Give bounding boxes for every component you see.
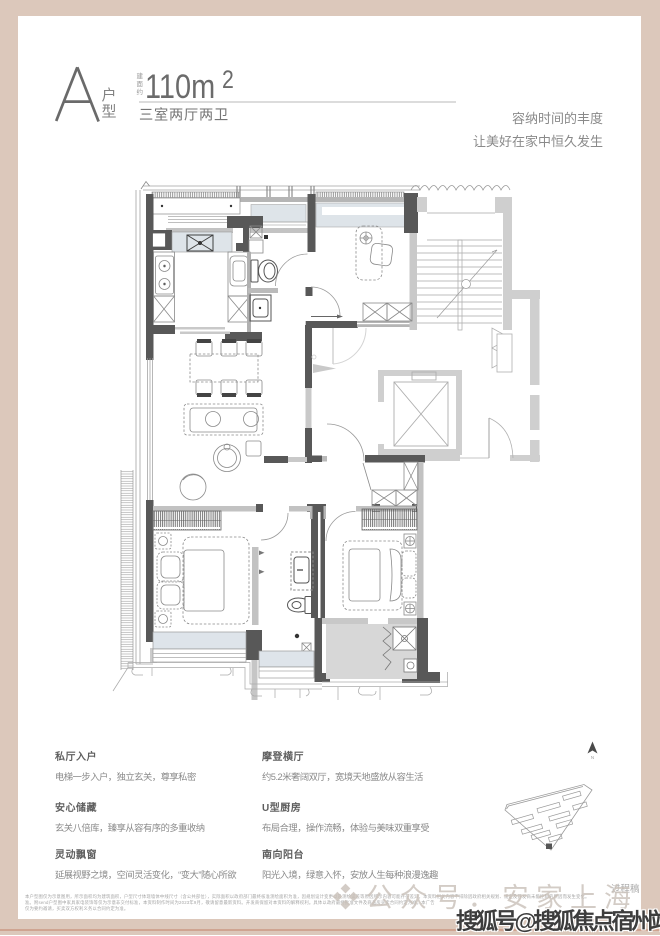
svg-text:N: N [591, 755, 594, 760]
